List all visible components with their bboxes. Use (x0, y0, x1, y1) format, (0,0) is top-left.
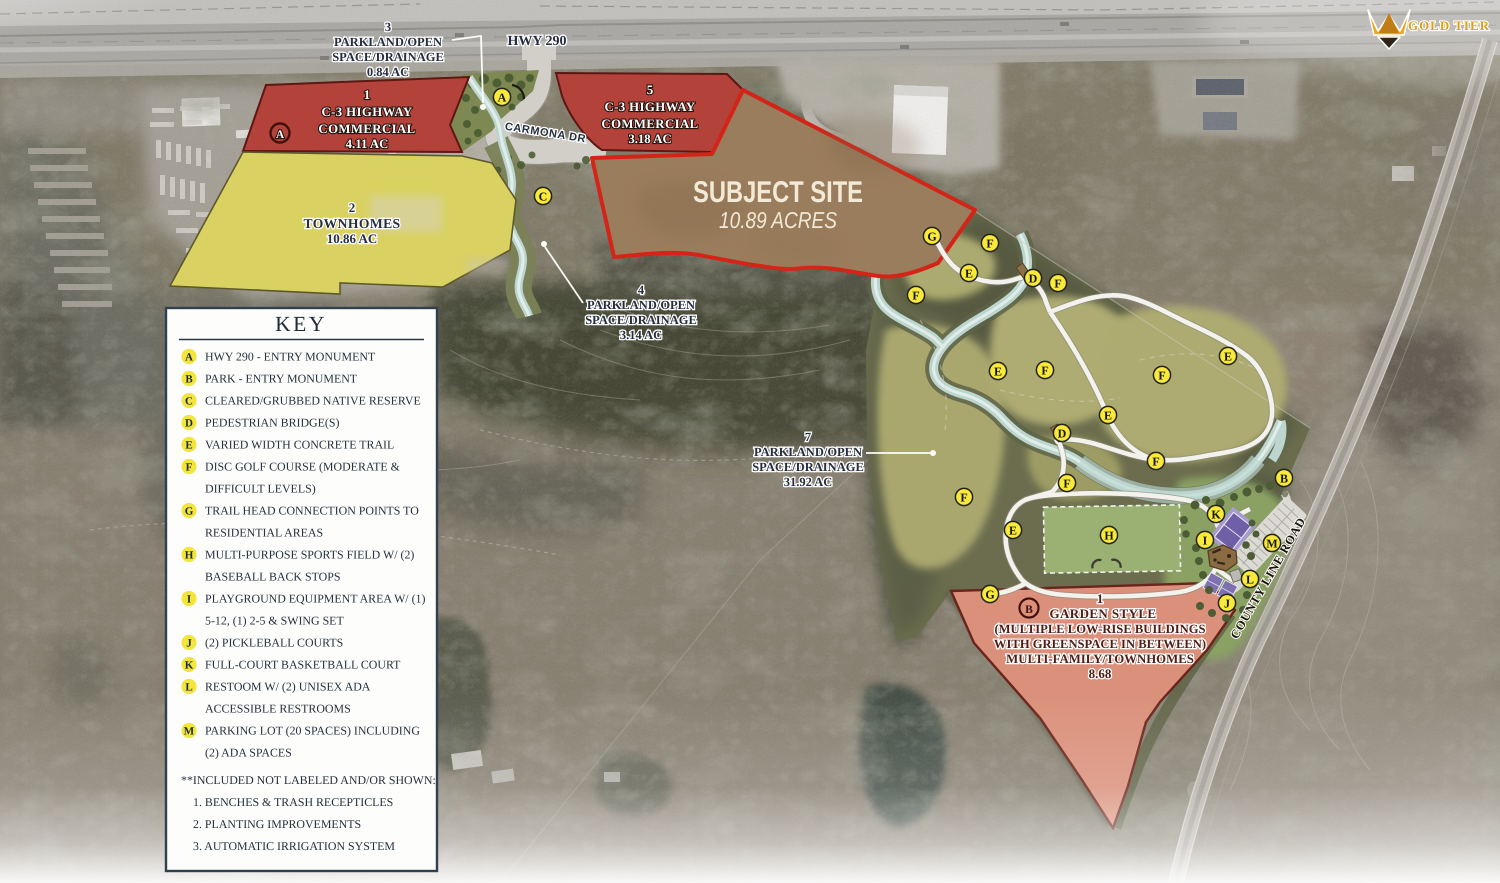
svg-text:RESIDENTIAL AREAS: RESIDENTIAL AREAS (205, 526, 323, 540)
svg-text:4.11 AC: 4.11 AC (346, 137, 389, 151)
svg-text:PARKING LOT (20 SPACES) INCLUD: PARKING LOT (20 SPACES) INCLUDING (205, 724, 420, 738)
svg-text:DISC GOLF COURSE (MODERATE &: DISC GOLF COURSE (MODERATE & (205, 460, 401, 474)
svg-text:PEDESTRIAN BRIDGE(S): PEDESTRIAN BRIDGE(S) (205, 416, 339, 430)
svg-text:VARIED WIDTH CONCRETE TRAIL: VARIED WIDTH CONCRETE TRAIL (205, 438, 394, 452)
svg-text:KEY: KEY (275, 312, 327, 336)
svg-text:E: E (185, 440, 192, 452)
svg-text:SPACE/DRAINAGE: SPACE/DRAINAGE (752, 460, 864, 474)
svg-text:3: 3 (385, 20, 391, 34)
svg-text:F: F (960, 491, 967, 505)
svg-text:M: M (184, 726, 195, 738)
svg-text:CLEARED/GRUBBED NATIVE RESERVE: CLEARED/GRUBBED NATIVE RESERVE (205, 394, 421, 408)
svg-text:2: 2 (349, 200, 356, 215)
svg-text:DIFFICULT LEVELS): DIFFICULT LEVELS) (205, 482, 316, 496)
svg-text:HWY 290 - ENTRY MONUMENT: HWY 290 - ENTRY MONUMENT (205, 350, 376, 364)
svg-text:A: A (498, 91, 507, 105)
svg-text:F: F (986, 237, 993, 251)
svg-text:C: C (185, 396, 193, 408)
svg-text:GARDEN STYLE: GARDEN STYLE (1049, 606, 1156, 621)
svg-text:MULTI-FAMILY/TOWNHOMES: MULTI-FAMILY/TOWNHOMES (1006, 652, 1194, 666)
svg-text:PARKLAND/OPEN: PARKLAND/OPEN (334, 35, 442, 49)
svg-text:10.86 AC: 10.86 AC (327, 231, 378, 246)
svg-text:(2) PICKLEBALL COURTS: (2) PICKLEBALL COURTS (205, 636, 343, 650)
svg-text:(2) ADA SPACES: (2) ADA SPACES (205, 746, 292, 760)
svg-text:COMMERCIAL: COMMERCIAL (318, 122, 415, 136)
svg-text:E: E (965, 267, 973, 281)
svg-text:WITH GREENSPACE IN BETWEEN): WITH GREENSPACE IN BETWEEN) (994, 637, 1206, 651)
svg-text:**INCLUDED NOT LABELED AND/OR: **INCLUDED NOT LABELED AND/OR SHOWN: (181, 773, 436, 787)
svg-text:K: K (185, 660, 194, 672)
svg-text:3.14 AC: 3.14 AC (620, 328, 662, 342)
svg-text:H: H (1104, 529, 1114, 543)
svg-text:B: B (185, 374, 193, 386)
svg-text:5-12, (1) 2-5 & SWING SET: 5-12, (1) 2-5 & SWING SET (205, 614, 344, 628)
svg-text:E: E (1104, 409, 1112, 423)
svg-text:L: L (185, 682, 192, 694)
svg-text:2. PLANTING IMPROVEMENTS: 2. PLANTING IMPROVEMENTS (193, 817, 361, 831)
svg-text:F: F (1054, 277, 1061, 291)
svg-text:M: M (1266, 537, 1277, 551)
svg-text:F: F (1063, 477, 1070, 491)
svg-text:I: I (1203, 534, 1208, 548)
svg-text:3.18 AC: 3.18 AC (628, 132, 671, 146)
svg-text:G: G (985, 588, 994, 602)
svg-text:7: 7 (805, 430, 811, 444)
svg-text:FULL-COURT BASKETBALL COURT: FULL-COURT BASKETBALL COURT (205, 658, 401, 672)
svg-text:H: H (185, 550, 194, 562)
svg-text:SPACE/DRAINAGE: SPACE/DRAINAGE (585, 313, 697, 327)
svg-text:C: C (539, 190, 548, 204)
svg-text:C-3 HIGHWAY: C-3 HIGHWAY (321, 105, 412, 119)
svg-text:GOLD TIER: GOLD TIER (1408, 18, 1490, 33)
svg-text:3. AUTOMATIC IRRIGATION SYSTEM: 3. AUTOMATIC IRRIGATION SYSTEM (193, 839, 395, 853)
svg-text:ACCESSIBLE RESTROOMS: ACCESSIBLE RESTROOMS (205, 702, 351, 716)
svg-text:G: G (927, 230, 936, 244)
svg-text:10.89 ACRES: 10.89 ACRES (719, 207, 838, 233)
svg-text:K: K (1211, 508, 1221, 522)
svg-text:A: A (276, 129, 285, 141)
svg-text:B: B (1280, 472, 1288, 486)
svg-text:COMMERCIAL: COMMERCIAL (601, 117, 698, 131)
svg-text:F: F (1152, 455, 1159, 469)
svg-text:B: B (1025, 604, 1033, 616)
svg-text:A: A (185, 352, 193, 364)
svg-text:TOWNHOMES: TOWNHOMES (303, 216, 400, 231)
svg-text:G: G (185, 506, 194, 518)
svg-text:BASEBALL BACK STOPS: BASEBALL BACK STOPS (205, 570, 340, 584)
svg-text:I: I (187, 594, 191, 606)
svg-text:F: F (1041, 364, 1048, 378)
svg-text:PARK - ENTRY MONUMENT: PARK - ENTRY MONUMENT (205, 372, 358, 386)
svg-text:PARKLAND/OPEN: PARKLAND/OPEN (587, 298, 695, 312)
svg-text:D: D (185, 418, 193, 430)
svg-text:L: L (1246, 573, 1254, 587)
svg-text:D: D (1029, 272, 1038, 286)
svg-text:PLAYGROUND EQUIPMENT AREA W/ (: PLAYGROUND EQUIPMENT AREA W/ (1) (205, 592, 425, 606)
svg-text:SPACE/DRAINAGE: SPACE/DRAINAGE (332, 50, 444, 64)
svg-text:4: 4 (638, 283, 645, 297)
svg-text:E: E (1009, 524, 1017, 538)
svg-text:F: F (912, 289, 919, 303)
svg-text:0.84 AC: 0.84 AC (367, 65, 409, 79)
svg-text:(MULTIPLE LOW-RISE BUILDINGS: (MULTIPLE LOW-RISE BUILDINGS (994, 622, 1205, 636)
svg-text:E: E (994, 365, 1002, 379)
svg-text:F: F (1158, 369, 1165, 383)
svg-text:31.92 AC: 31.92 AC (784, 475, 833, 489)
svg-text:1: 1 (364, 87, 371, 102)
svg-text:8.68: 8.68 (1089, 666, 1112, 681)
svg-text:F: F (186, 462, 193, 474)
svg-text:J: J (1224, 597, 1230, 611)
svg-text:5: 5 (647, 82, 654, 97)
svg-text:J: J (186, 638, 192, 650)
svg-text:C-3 HIGHWAY: C-3 HIGHWAY (604, 100, 695, 114)
svg-text:SUBJECT SITE: SUBJECT SITE (693, 176, 863, 209)
svg-text:1. BENCHES & TRASH RECEPTICLES: 1. BENCHES & TRASH RECEPTICLES (193, 795, 393, 809)
svg-text:RESTOOM W/ (2) UNISEX ADA: RESTOOM W/ (2) UNISEX ADA (205, 680, 371, 694)
svg-text:HWY 290: HWY 290 (508, 34, 567, 49)
svg-text:PARKLAND/OPEN: PARKLAND/OPEN (754, 445, 862, 459)
svg-text:MULTI-PURPOSE SPORTS FIELD W/: MULTI-PURPOSE SPORTS FIELD W/ (2) (205, 548, 414, 562)
svg-text:TRAIL HEAD CONNECTION POINTS T: TRAIL HEAD CONNECTION POINTS TO (205, 504, 419, 518)
svg-text:D: D (1058, 427, 1067, 441)
svg-text:1: 1 (1097, 591, 1104, 606)
svg-text:E: E (1224, 350, 1232, 364)
